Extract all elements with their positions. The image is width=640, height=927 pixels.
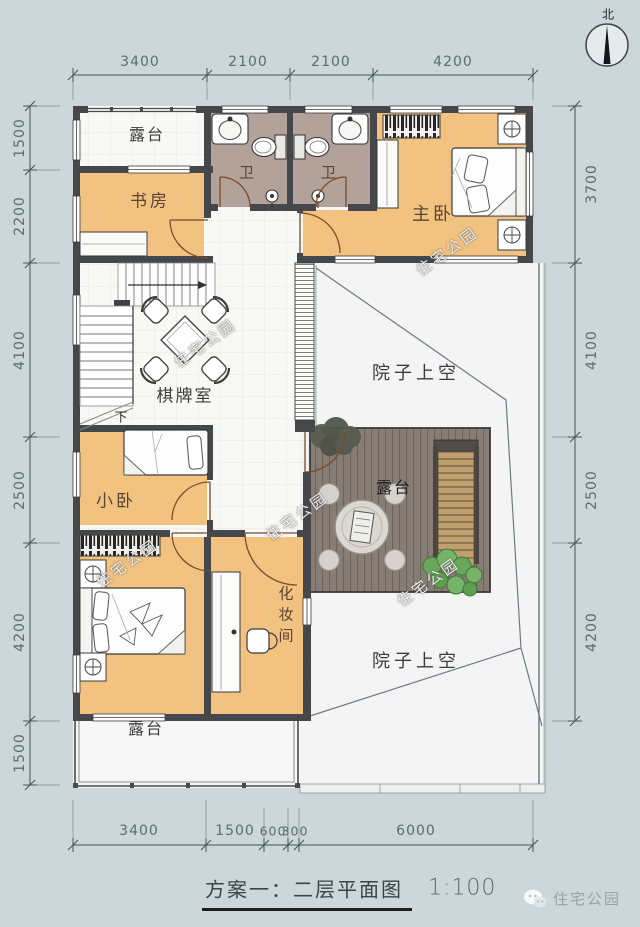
deck-terrace [310, 417, 490, 596]
study-cabinet [80, 232, 147, 256]
outdoor-stair [433, 440, 479, 566]
toilet-left [252, 135, 286, 159]
compass [586, 24, 628, 66]
bedroom-wardrobe [80, 535, 160, 556]
floor-plan-page: 3400 2100 2100 4200 3400 1500 600 300 60… [0, 0, 640, 927]
master-bed [452, 148, 526, 216]
master-wardrobe [383, 115, 440, 138]
double-bed [80, 588, 185, 654]
floor-plan-drawing [0, 0, 640, 927]
toilet-right [294, 135, 329, 159]
sink-left [212, 114, 248, 144]
small-bed [124, 430, 208, 475]
sink-right [332, 114, 368, 144]
chess-glass-wall [295, 263, 314, 420]
